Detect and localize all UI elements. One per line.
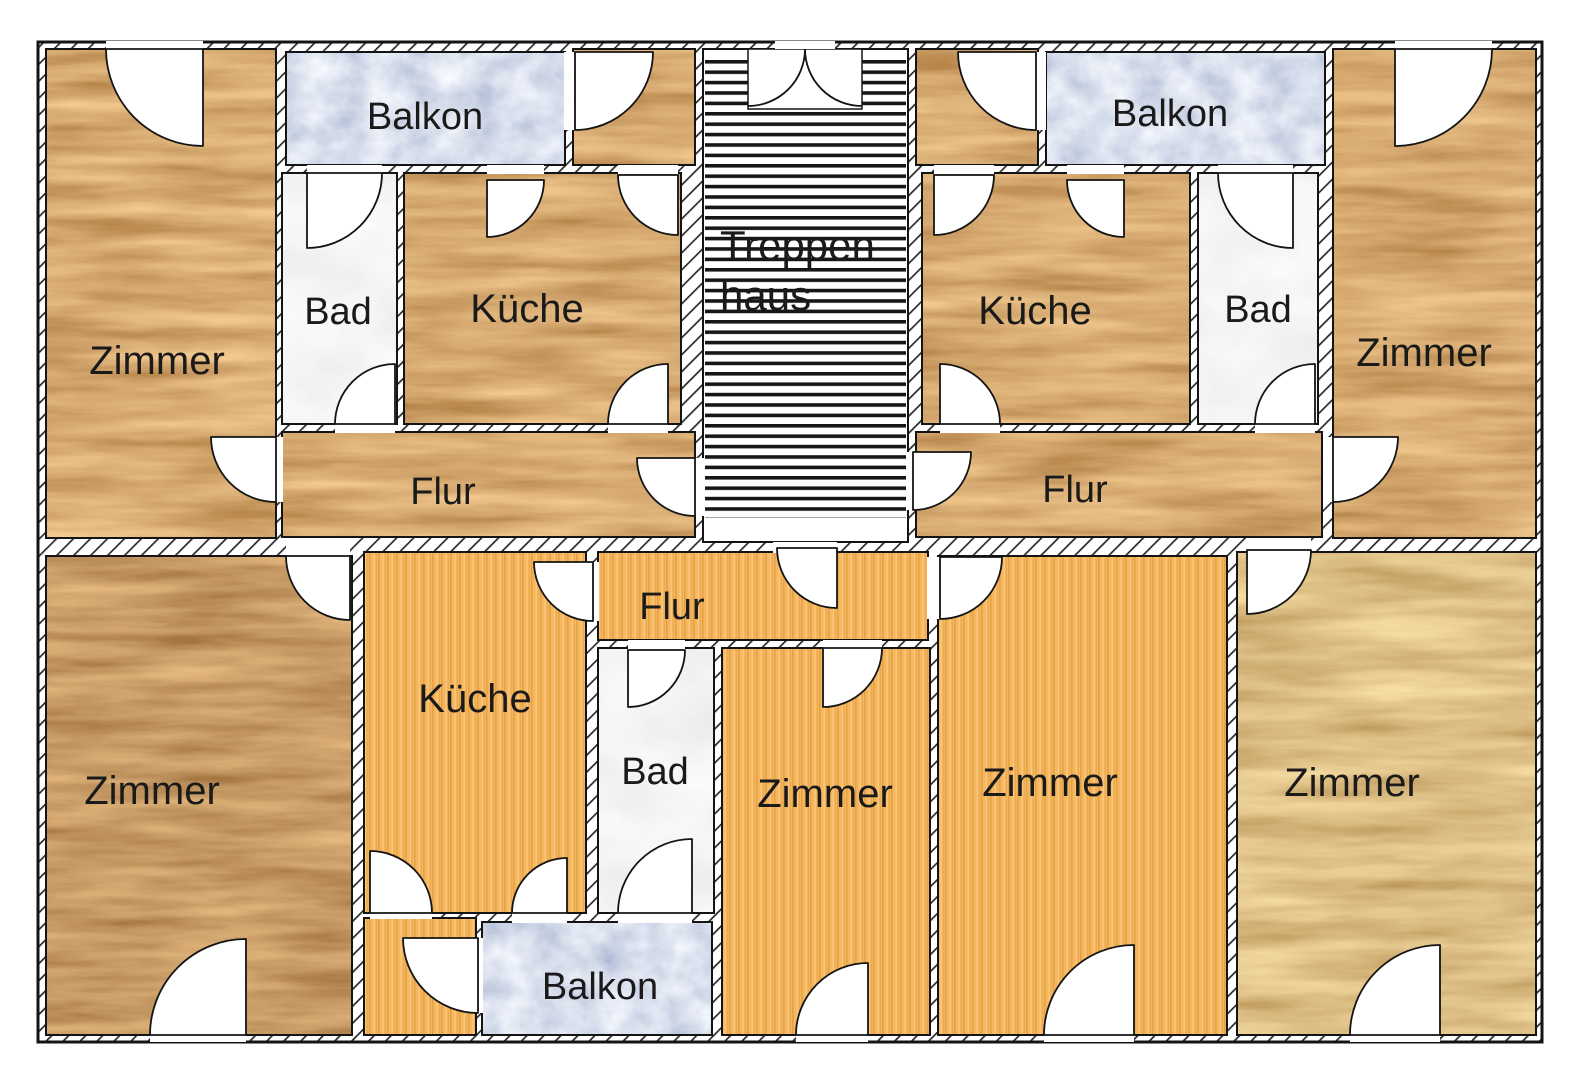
label-zimmer-bottom-left: Zimmer [84,769,220,813]
label-balkon-bottom: Balkon [542,966,658,1008]
label-kueche-bottom: Küche [418,677,531,721]
label-balkon-top-right: Balkon [1112,93,1228,135]
label-bad-top-left: Bad [304,291,372,333]
label-flur-bottom: Flur [639,586,705,628]
room-flur-top-left [282,432,695,537]
label-stairwell-line2: haus [720,272,811,319]
label-zimmer-bottom-a: Zimmer [757,772,893,816]
label-bad-top-right: Bad [1224,289,1292,331]
label-zimmer-bottom-b: Zimmer [982,761,1118,805]
label-zimmer-top-right: Zimmer [1356,331,1492,375]
label-kueche-top-right: Küche [978,289,1091,333]
label-flur-top-left: Flur [410,471,476,513]
label-balkon-top-left: Balkon [367,96,483,138]
label-flur-top-right: Flur [1042,469,1108,511]
label-stairwell-line1: Treppen [720,222,875,269]
label-kueche-top-left: Küche [470,287,583,331]
label-zimmer-bottom-right: Zimmer [1284,761,1420,805]
label-bad-bottom: Bad [621,751,689,793]
floor-plan: Zimmer Balkon Bad Küche Flur Küche Bad Z… [0,0,1576,1080]
label-zimmer-top-left: Zimmer [89,339,225,383]
room-flur-top-right [916,432,1322,537]
